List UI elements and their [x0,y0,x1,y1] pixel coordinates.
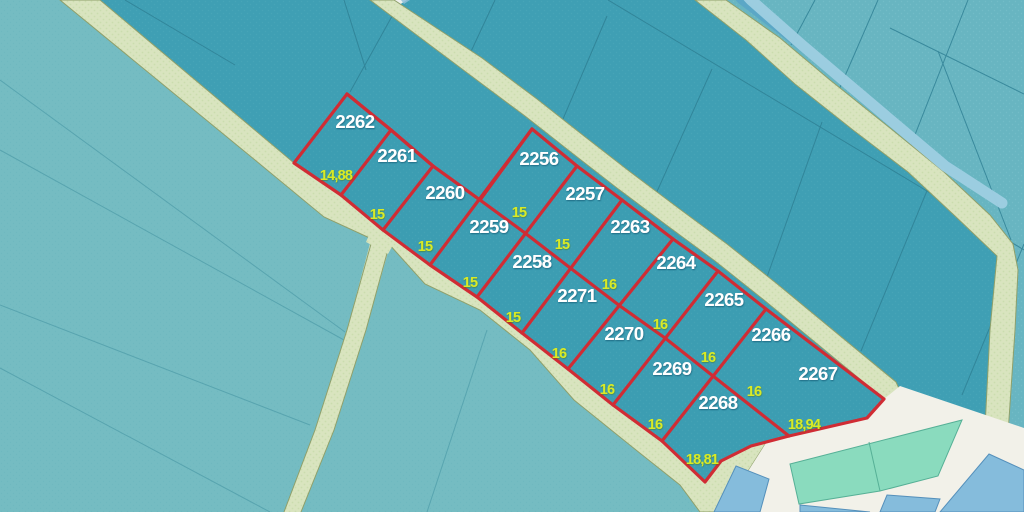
svg-text:2267: 2267 [798,363,837,384]
svg-text:16: 16 [648,417,663,433]
svg-text:18,94: 18,94 [788,417,821,433]
svg-text:2263: 2263 [610,216,649,237]
svg-text:16: 16 [552,346,567,362]
svg-text:16: 16 [747,384,762,400]
svg-text:16: 16 [653,317,668,333]
svg-text:15: 15 [418,239,433,255]
svg-text:15: 15 [512,205,527,221]
svg-text:2259: 2259 [469,216,508,237]
svg-text:2269: 2269 [652,358,691,379]
svg-text:2260: 2260 [425,182,464,203]
svg-text:16: 16 [602,277,617,293]
svg-text:2270: 2270 [604,323,643,344]
svg-text:2257: 2257 [565,183,604,204]
svg-text:2265: 2265 [704,289,743,310]
svg-text:2268: 2268 [698,392,737,413]
svg-text:2262: 2262 [335,111,374,132]
svg-text:2271: 2271 [557,285,596,306]
svg-text:2256: 2256 [519,148,558,169]
svg-text:15: 15 [463,275,478,291]
svg-text:15: 15 [370,207,385,223]
svg-text:16: 16 [600,382,615,398]
svg-text:2266: 2266 [751,324,790,345]
svg-text:2261: 2261 [377,145,416,166]
svg-text:15: 15 [555,237,570,253]
svg-text:16: 16 [701,350,716,366]
svg-text:18,81: 18,81 [686,452,719,468]
svg-text:2264: 2264 [656,252,696,273]
svg-text:14,88: 14,88 [320,168,353,184]
svg-text:2258: 2258 [512,251,551,272]
svg-text:15: 15 [506,310,521,326]
